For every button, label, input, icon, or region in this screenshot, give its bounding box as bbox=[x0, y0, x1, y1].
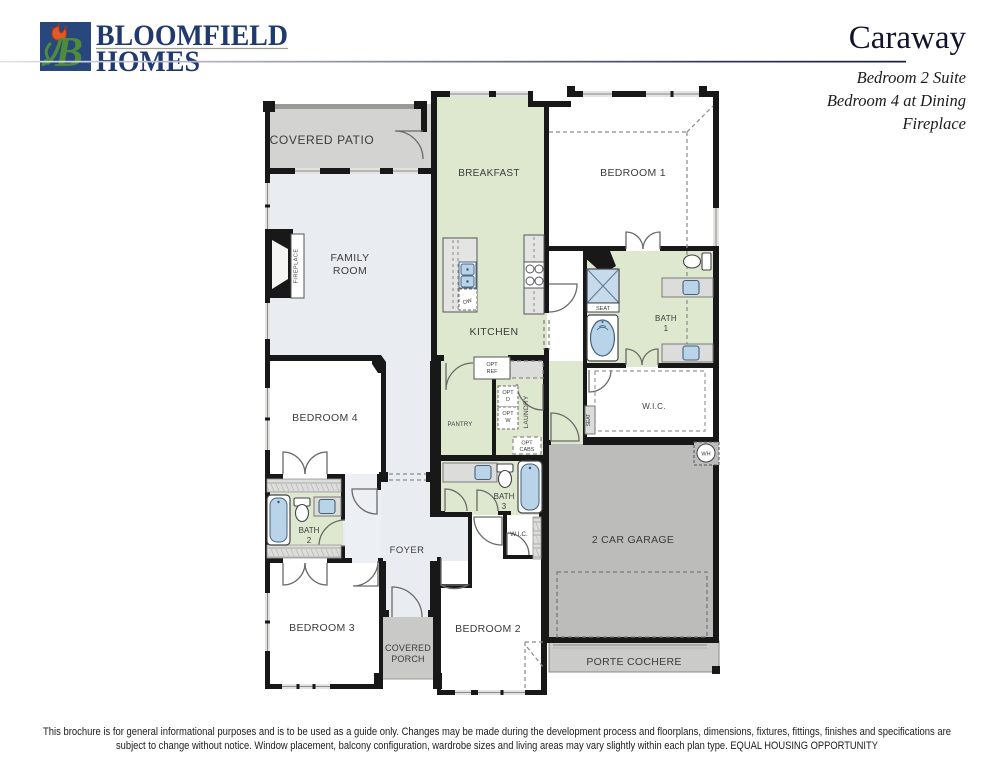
svg-text:BREAKFAST: BREAKFAST bbox=[458, 168, 520, 179]
svg-text:BEDROOM 4: BEDROOM 4 bbox=[292, 412, 358, 424]
svg-text:B: B bbox=[54, 30, 83, 76]
svg-text:3: 3 bbox=[502, 502, 507, 511]
svg-text:W: W bbox=[505, 418, 511, 424]
svg-text:FOYER: FOYER bbox=[390, 545, 425, 556]
svg-text:OPT: OPT bbox=[502, 390, 514, 396]
svg-text:OPT: OPT bbox=[486, 362, 498, 368]
svg-text:Caraway: Caraway bbox=[849, 20, 967, 56]
svg-text:1: 1 bbox=[664, 324, 669, 333]
svg-text:W.I.C.: W.I.C. bbox=[642, 402, 666, 411]
svg-text:CABS: CABS bbox=[520, 447, 535, 453]
svg-text:Bedroom 2 Suite: Bedroom 2 Suite bbox=[857, 68, 966, 87]
svg-text:ROOM: ROOM bbox=[333, 265, 367, 277]
svg-text:This brochure is for general i: This brochure is for general information… bbox=[43, 726, 951, 738]
svg-text:D: D bbox=[506, 397, 510, 403]
svg-text:KITCHEN: KITCHEN bbox=[470, 326, 519, 338]
svg-text:PORCH: PORCH bbox=[391, 654, 425, 664]
svg-text:BEDROOM 2: BEDROOM 2 bbox=[455, 623, 521, 635]
svg-text:LAUNDRY: LAUNDRY bbox=[523, 395, 530, 428]
svg-text:subject to change without noti: subject to change without notice. Window… bbox=[116, 740, 879, 752]
svg-text:2: 2 bbox=[307, 536, 312, 545]
svg-text:FAMILY: FAMILY bbox=[331, 252, 370, 264]
svg-text:PORTE COCHERE: PORTE COCHERE bbox=[586, 656, 681, 668]
svg-text:COVERED PATIO: COVERED PATIO bbox=[270, 133, 375, 147]
svg-text:BEDROOM 1: BEDROOM 1 bbox=[600, 167, 666, 179]
svg-text:BATH: BATH bbox=[655, 314, 677, 323]
svg-text:REF: REF bbox=[487, 369, 499, 375]
svg-text:2 CAR GARAGE: 2 CAR GARAGE bbox=[592, 534, 674, 546]
svg-text:WH: WH bbox=[701, 452, 710, 458]
svg-text:Bedroom 4 at Dining: Bedroom 4 at Dining bbox=[827, 91, 966, 110]
svg-text:BEDROOM 3: BEDROOM 3 bbox=[289, 622, 355, 634]
svg-text:BATH: BATH bbox=[494, 492, 515, 501]
svg-text:SEAT: SEAT bbox=[586, 414, 592, 427]
svg-text:Fireplace: Fireplace bbox=[901, 114, 966, 133]
svg-text:OPT: OPT bbox=[502, 411, 514, 417]
svg-text:OPT: OPT bbox=[521, 441, 533, 447]
svg-text:FIREPLACE: FIREPLACE bbox=[294, 248, 300, 283]
svg-text:COVERED: COVERED bbox=[385, 643, 431, 653]
svg-text:SEAT: SEAT bbox=[596, 306, 611, 312]
svg-text:BATH: BATH bbox=[299, 526, 320, 535]
svg-text:PANTRY: PANTRY bbox=[448, 422, 473, 428]
svg-text:W.I.C.: W.I.C. bbox=[510, 531, 528, 538]
